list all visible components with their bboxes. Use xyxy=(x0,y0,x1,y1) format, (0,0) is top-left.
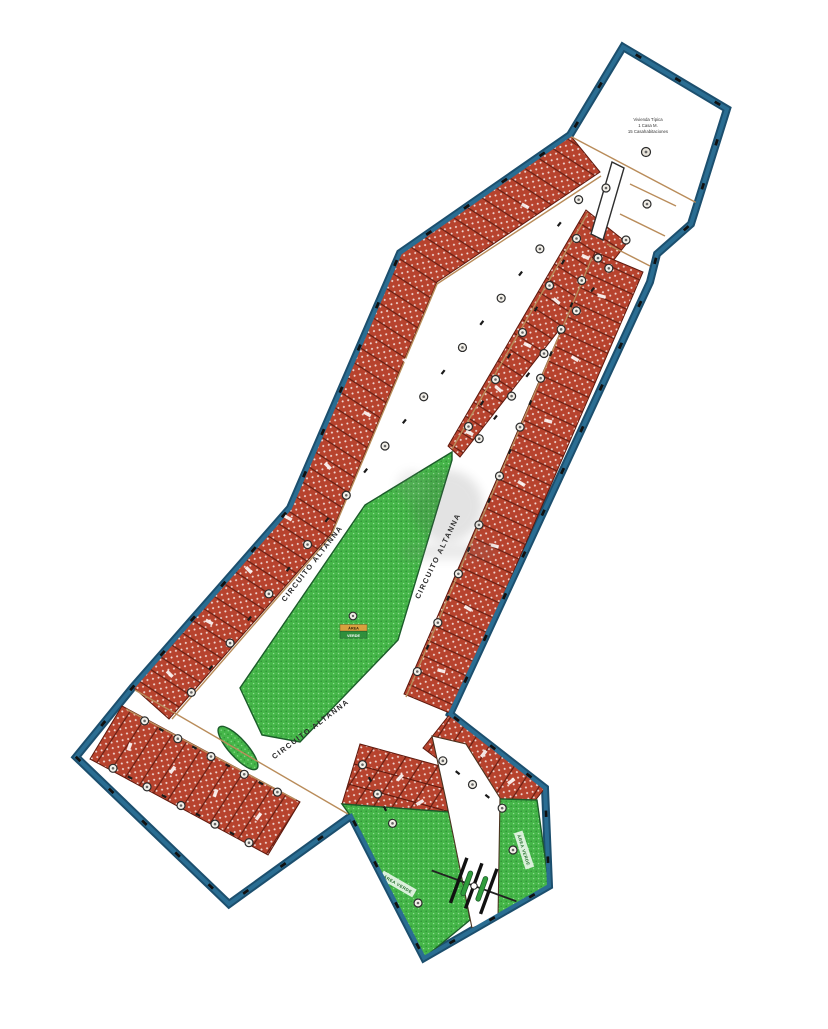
tree-circle-dot xyxy=(510,395,513,398)
tree-circle-dot xyxy=(560,328,563,331)
site-plan-image: ÁREA VERDE ÁREA VERDE ÁREA VERDE Viviend… xyxy=(0,0,828,1029)
tree-circle-dot xyxy=(457,572,460,575)
tree-circle-dot xyxy=(605,187,608,190)
tree-circle-dot xyxy=(521,331,524,334)
tree-circle-dot xyxy=(625,239,628,242)
tree-circle-dot xyxy=(345,494,348,497)
tree-circle-dot xyxy=(417,902,420,905)
tree-circle-dot xyxy=(646,203,649,206)
tree-circle-dot xyxy=(229,642,232,645)
median-sign-line2: VERDE xyxy=(347,634,361,638)
tree-circle-dot xyxy=(442,760,445,763)
tree-circle-dot xyxy=(575,237,578,240)
tree-circle-dot xyxy=(210,755,213,758)
green-park-left xyxy=(342,804,470,958)
tree-circle-dot xyxy=(276,791,279,794)
streetlight-tick xyxy=(546,856,549,863)
tree-circle-dot xyxy=(577,198,580,201)
tree-circle-dot xyxy=(608,267,611,270)
tree-circle-dot xyxy=(512,849,515,852)
tree-circle-dot xyxy=(467,425,470,428)
tree-circle-dot xyxy=(498,475,501,478)
tree-circle-dot xyxy=(146,786,149,789)
tree-circle-dot xyxy=(543,352,546,355)
tree-circle-dot xyxy=(214,823,217,826)
tree-circle-dot xyxy=(306,543,309,546)
tree-circle-dot xyxy=(190,691,193,694)
tree-circle-dot xyxy=(422,395,425,398)
tree-circle-dot xyxy=(416,670,419,673)
master-plan-drawing: ÁREA VERDE ÁREA VERDE ÁREA VERDE Viviend… xyxy=(0,0,828,1029)
info-line-2: 1 Casa M. xyxy=(638,123,658,128)
tree-circle-dot xyxy=(478,437,481,440)
tree-circle-dot xyxy=(143,720,146,723)
tree-circle-dot xyxy=(548,284,551,287)
info-tree-icon-dot xyxy=(645,151,648,154)
tree-circle-dot xyxy=(248,841,251,844)
median-sign-line1: ÁREA xyxy=(348,626,359,631)
tree-circle-dot xyxy=(539,377,542,380)
tree-circle-dot xyxy=(471,783,474,786)
info-line-3: 15 Casahabitaciones xyxy=(628,129,668,134)
tree-circle-dot xyxy=(501,807,504,810)
tree-circle-dot xyxy=(391,822,394,825)
tree-circle-dot xyxy=(180,804,183,807)
tree-circle-dot xyxy=(597,257,600,260)
tree-circle-dot xyxy=(243,773,246,776)
tree-circle-dot xyxy=(575,310,578,313)
tree-circle-dot xyxy=(384,445,387,448)
tree-circle-dot xyxy=(580,279,583,282)
tree-circle-dot xyxy=(437,621,440,624)
tree-circle-dot xyxy=(268,593,271,596)
tree-circle-dot xyxy=(376,793,379,796)
info-line-1: Vivienda Típica xyxy=(633,117,663,122)
tree-circle-dot xyxy=(539,248,542,251)
tree-circle-dot xyxy=(461,346,464,349)
streetlight-tick xyxy=(545,810,548,817)
tree-circle-dot xyxy=(361,763,364,766)
tree-icon-dot xyxy=(352,615,354,617)
tree-circle-dot xyxy=(500,297,503,300)
tree-circle-dot xyxy=(112,767,115,770)
tree-circle-dot xyxy=(519,426,522,429)
tree-circle-dot xyxy=(177,737,180,740)
tree-circle-dot xyxy=(494,378,497,381)
